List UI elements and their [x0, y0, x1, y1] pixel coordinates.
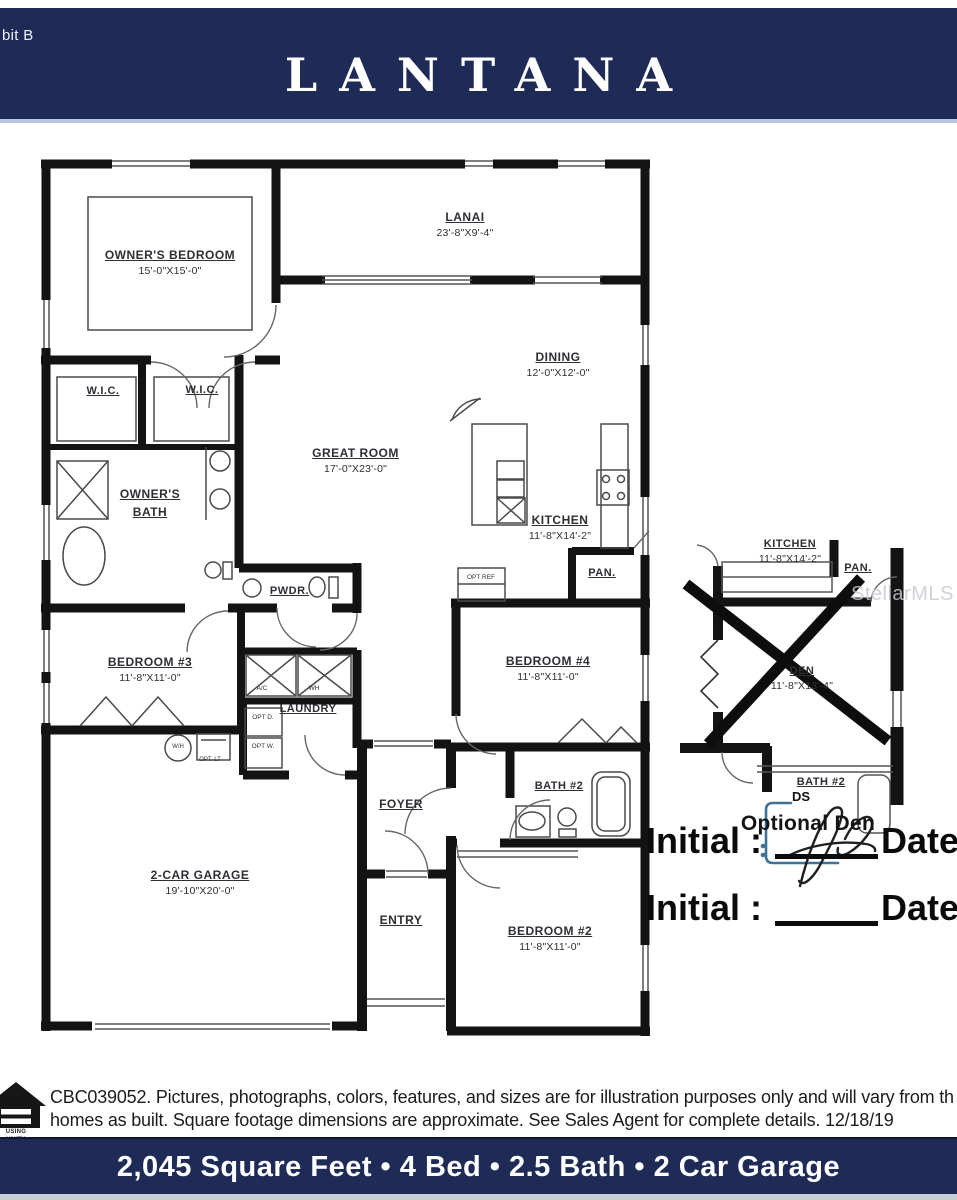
disclaimer: CBC039052. Pictures, photographs, colors… [50, 1086, 957, 1131]
plan-title: LANTANA [0, 52, 957, 98]
room-name: KITCHEN [764, 538, 816, 550]
room-label-wic-left: W.I.C. [78, 381, 128, 399]
water-heater-label: W/H [165, 744, 191, 751]
room-name: LAUNDRY [280, 703, 337, 715]
room-name: W.I.C. [87, 385, 120, 397]
room-label-wic-right: W.I.C. [177, 380, 227, 398]
room-name: GREAT ROOM [312, 446, 399, 460]
room-name: FOYER [379, 797, 423, 811]
house-body-icon [0, 1104, 40, 1128]
house-roof-icon [0, 1082, 46, 1106]
footer-summary: 2,045 Square Feet • 4 Bed • 2.5 Bath • 2… [117, 1151, 840, 1184]
exhibit-label: bit B [2, 27, 34, 44]
room-label-entry: ENTRY [370, 911, 432, 929]
inset-label-den: DEN 11'-8"X13'-4" [762, 661, 842, 692]
room-label-lanai: LANAI 23'-8"X9'-4" [420, 208, 510, 239]
wh-label: WH [297, 685, 331, 692]
initial-label: Initial : [646, 823, 772, 859]
room-label-bedroom2: BEDROOM #2 11'-8"X11'-0" [500, 922, 600, 953]
opt-ref-label: OPT REF [458, 574, 504, 581]
room-name: PAN. [588, 567, 615, 579]
room-dims: 11'-8"X14'-2" [515, 530, 605, 542]
room-dims: 11'-8"X11'-0" [498, 671, 598, 683]
room-label-kitchen: KITCHEN 11'-8"X14'-2" [515, 511, 605, 542]
initial-label: Initial : [646, 890, 772, 926]
equal-housing-logo [0, 1080, 48, 1130]
date-label: Date [881, 890, 957, 926]
room-dims: 19'-10"X20'-0" [135, 885, 265, 897]
room-label-owners-bedroom: OWNER'S BEDROOM 15'-0"X15'-0" [100, 246, 240, 277]
disclaimer-line-1: CBC039052. Pictures, photographs, colors… [50, 1086, 957, 1109]
room-name: OWNER'S BEDROOM [105, 248, 235, 262]
inset-label-bath2: BATH #2 [788, 772, 854, 790]
room-label-great-room: GREAT ROOM 17'-0"X23'-0" [303, 444, 408, 475]
initial-date-row-2: Initial : Date [646, 889, 957, 926]
inset-label-pantry: PAN. [836, 558, 880, 576]
room-dims: 11'-8"X14'-2" [740, 553, 840, 565]
room-label-laundry: LAUNDRY [272, 699, 344, 717]
footer-bar: 2,045 Square Feet • 4 Bed • 2.5 Bath • 2… [0, 1137, 957, 1196]
disclaimer-line-2: homes as built. Square footage dimension… [50, 1109, 957, 1132]
room-name: BATH #2 [797, 776, 846, 788]
room-name: 2-CAR GARAGE [151, 868, 250, 882]
room-label-bedroom3: BEDROOM #3 11'-8"X11'-0" [100, 653, 200, 684]
room-name: BEDROOM #4 [506, 654, 590, 668]
docusign-tag: DS [792, 789, 810, 804]
room-name: KITCHEN [532, 513, 589, 527]
room-label-pantry: PAN. [578, 563, 626, 581]
room-label-bedroom4: BEDROOM #4 11'-8"X11'-0" [498, 652, 598, 683]
room-name: PAN. [844, 562, 871, 574]
date-label: Date [881, 823, 957, 859]
room-name: DINING [536, 350, 581, 364]
equal-housing-text-line1: USING [0, 1129, 48, 1137]
ac-label: A/C [246, 685, 278, 692]
opt-lt-label: OPT. LT [196, 757, 224, 764]
room-dims: 12'-0"X12'-0" [508, 367, 608, 379]
equal-bar-bottom [1, 1119, 31, 1125]
watermark: StellarMLS [851, 583, 954, 606]
title-banner: bit B LANTANA [0, 8, 957, 119]
room-dims: 15'-0"X15'-0" [100, 265, 240, 277]
room-name: PWDR. [270, 585, 309, 597]
room-dims: 11'-8"X11'-0" [500, 941, 600, 953]
initial-date-row-1: Initial : Date [646, 822, 957, 859]
room-label-powder: PWDR. [262, 581, 317, 599]
room-dims: 23'-8"X9'-4" [420, 227, 510, 239]
room-dims: 11'-8"X11'-0" [100, 672, 200, 684]
bottom-gray-strip [0, 1194, 957, 1200]
room-name: DEN [790, 665, 815, 677]
opt-dryer-label: OPT D. [247, 714, 279, 721]
room-name: BEDROOM #3 [108, 655, 192, 669]
room-name: ENTRY [380, 913, 423, 927]
room-dims: 11'-8"X13'-4" [762, 680, 842, 692]
room-label-owners-bath: OWNER'S BATH [114, 485, 186, 522]
room-label-foyer: FOYER [370, 795, 432, 813]
initial-fill-line[interactable] [775, 889, 878, 926]
floorplan-drawing [0, 0, 957, 1200]
room-name: BATH #2 [535, 780, 584, 792]
room-name: BEDROOM #2 [508, 924, 592, 938]
opt-washer-label: OPT W. [247, 743, 279, 750]
inset-label-kitchen: KITCHEN 11'-8"X14'-2" [740, 534, 840, 565]
initial-fill-line[interactable] [775, 822, 878, 859]
room-name: LANAI [445, 210, 484, 224]
room-label-garage: 2-CAR GARAGE 19'-10"X20'-0" [135, 866, 265, 897]
floorplan-page: bit B LANTANA OWNER'S BEDROOM 15'-0"X15'… [0, 0, 957, 1200]
room-label-bath2: BATH #2 [526, 776, 592, 794]
banner-accent-line [0, 119, 957, 123]
equal-bar-top [1, 1109, 31, 1115]
room-name: W.I.C. [186, 384, 219, 396]
room-dims: 17'-0"X23'-0" [303, 463, 408, 475]
room-label-dining: DINING 12'-0"X12'-0" [508, 348, 608, 379]
room-name: OWNER'S BATH [120, 487, 180, 519]
